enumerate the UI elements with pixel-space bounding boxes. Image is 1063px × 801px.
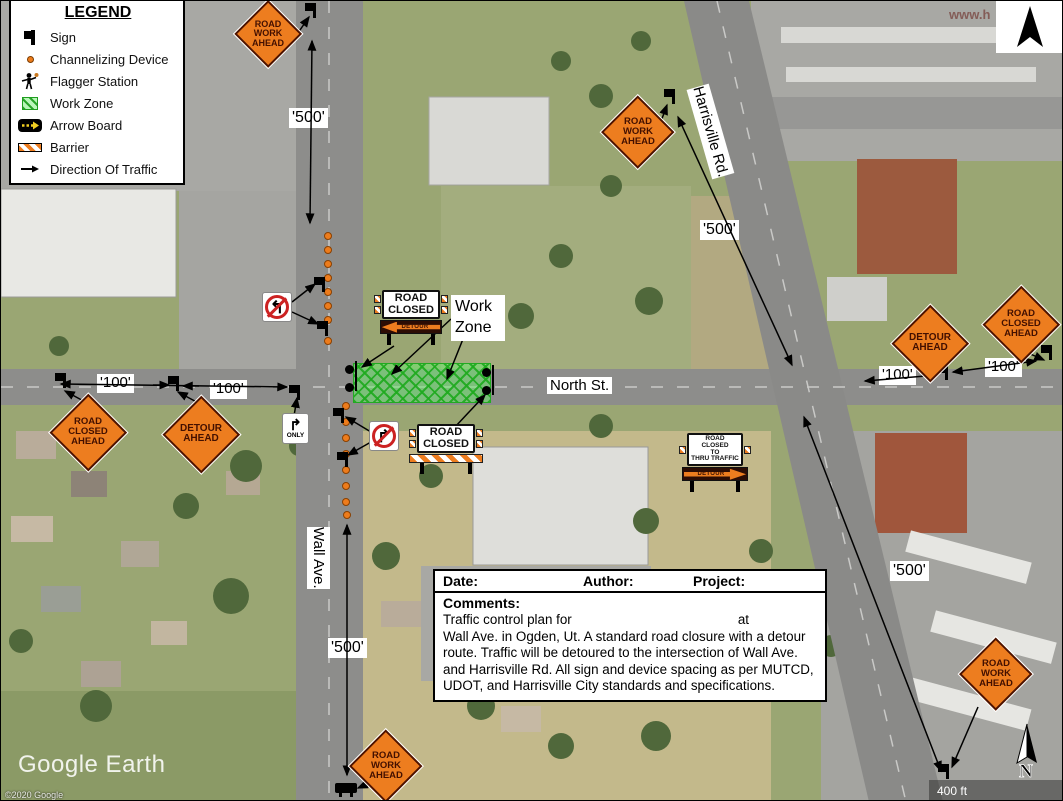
channelizing-device — [342, 434, 350, 442]
closure-bar — [492, 365, 494, 395]
detour-ahead-sign: DETOUR AHEAD — [895, 308, 965, 378]
no-left-turn-sign: ↰ — [262, 292, 292, 322]
sign-icon — [317, 321, 330, 337]
sign-icon — [337, 452, 350, 468]
project-label: Project: — [693, 573, 745, 589]
barricade-stripe — [374, 306, 381, 314]
street-label-north-st: North St. — [547, 377, 612, 394]
channelizing-device — [342, 498, 350, 506]
dimension-label-500: '500' — [890, 561, 929, 581]
work-zone-end-dot — [482, 368, 491, 377]
road-work-ahead-sign: ROAD WORK AHEAD — [353, 733, 419, 799]
legend-panel: LEGEND Sign Channelizing Device — [9, 1, 185, 185]
channelizing-device — [343, 511, 351, 519]
work-zone-end-dot — [482, 386, 491, 395]
work-zone-area — [353, 363, 491, 403]
closure-bar — [355, 361, 357, 391]
road-closed-ahead-sign: ROAD CLOSED AHEAD — [986, 289, 1056, 359]
sign-icon — [938, 764, 951, 780]
barricade-stripe — [679, 446, 686, 454]
dimension-label-500: '500' — [700, 220, 739, 240]
legend-title: LEGEND — [17, 4, 179, 22]
channelizing-device — [324, 260, 332, 268]
north-arrow-box — [996, 1, 1063, 53]
scale-bar: 400 ft — [929, 780, 1063, 801]
info-header-row: Date: Author: Project: — [435, 571, 825, 593]
road-closed-thru-traffic-barricade: ROAD CLOSED TO THRU TRAFFIC DETOUR — [679, 433, 751, 492]
dimension-label-100: '100' — [210, 380, 247, 399]
sign-icon — [55, 373, 68, 389]
sign-icon — [333, 408, 346, 424]
dimension-label-100: '100' — [97, 374, 134, 393]
barricade-stripe — [441, 306, 448, 314]
legend-item-flagger-station: Flagger Station — [17, 70, 179, 92]
barricade-stripe — [441, 295, 448, 303]
legend-item-direction-of-traffic: Direction Of Traffic — [17, 158, 179, 180]
dimension-label-100: '100' — [985, 358, 1022, 377]
detour-arrow-right: DETOUR — [684, 469, 746, 480]
road-work-ahead-sign: ROAD WORK AHEAD — [237, 3, 299, 65]
detour-arrow-panel: DETOUR — [682, 467, 748, 481]
no-right-turn-sign: ↱ — [369, 421, 399, 451]
legend-item-sign: Sign — [17, 26, 179, 48]
barrier-rail — [409, 454, 483, 463]
legend-item-barrier: Barrier — [17, 136, 179, 158]
detour-arrow-panel: DETOUR — [380, 320, 443, 334]
direction-of-traffic-icon — [17, 165, 43, 173]
google-earth-watermark: Google Earth — [18, 751, 165, 779]
traffic-control-plan: ROAD WORK AHEAD ROAD WORK AHEAD ROAD WOR… — [0, 0, 1063, 801]
compass-north: N — [1009, 721, 1045, 779]
work-zone-end-dot — [345, 365, 354, 374]
channelizing-device — [324, 232, 332, 240]
work-zone-icon — [17, 97, 43, 110]
copyright-text: ©2020 Google — [5, 790, 63, 800]
sign-icon — [17, 29, 43, 46]
channelizing-device-icon — [17, 56, 43, 63]
sign-icon — [289, 385, 302, 401]
sign-icon — [168, 376, 181, 392]
barrier-icon — [17, 143, 43, 152]
detour-ahead-sign: DETOUR AHEAD — [166, 399, 236, 469]
right-turn-arrow-icon: ↱ — [377, 428, 391, 445]
dimension-label-500: '500' — [289, 108, 328, 128]
barricade-stripe — [374, 295, 381, 303]
right-turn-only-sign: ↱ ONLY — [282, 413, 309, 444]
barricade-stripe — [476, 429, 483, 437]
plan-info-box: Date: Author: Project: Comments: Traffic… — [433, 569, 827, 702]
arrow-board-icon — [17, 119, 43, 132]
barricade-stripe — [409, 440, 416, 448]
street-label-wall-ave: Wall Ave. — [307, 527, 330, 589]
barricade-stripe — [476, 440, 483, 448]
channelizing-device — [342, 482, 350, 490]
legend-item-work-zone: Work Zone — [17, 92, 179, 114]
legend-item-arrow-board: Arrow Board — [17, 114, 179, 136]
channelizing-device — [324, 302, 332, 310]
channelizing-device — [324, 337, 332, 345]
work-zone-end-dot — [345, 383, 354, 392]
date-label: Date: — [443, 573, 583, 589]
sign-icon — [305, 3, 318, 19]
turn-arrow-icon: ↱ — [289, 418, 302, 433]
road-closed-ahead-sign: ROAD CLOSED AHEAD — [53, 397, 123, 467]
north-arrow-icon — [1010, 4, 1050, 50]
north-letter: N — [1019, 761, 1033, 779]
legend-item-channelizing-device: Channelizing Device — [17, 48, 179, 70]
road-closed-barricade: ROAD CLOSED — [409, 424, 483, 474]
channelizing-device — [324, 246, 332, 254]
barricade-stripe — [409, 429, 416, 437]
road-work-ahead-sign: ROAD WORK AHEAD — [963, 641, 1029, 707]
url-watermark: www.h — [949, 7, 990, 22]
detour-arrow-left: DETOUR — [382, 322, 441, 333]
comments-text: Traffic control plan for at Wall Ave. in… — [435, 611, 825, 700]
barricade-stripe — [744, 446, 751, 454]
sign-icon — [314, 277, 327, 293]
road-work-ahead-sign: ROAD WORK AHEAD — [605, 99, 671, 165]
author-label: Author: — [583, 573, 693, 589]
flagger-station-icon — [17, 72, 43, 90]
work-zone-callout: Work Zone — [451, 295, 505, 341]
scale-label: 400 ft — [937, 784, 967, 798]
dimension-label-500: '500' — [328, 638, 367, 658]
comments-label: Comments: — [435, 593, 825, 611]
left-turn-arrow-icon: ↰ — [270, 299, 284, 316]
road-closed-barricade-detour-left: ROAD CLOSED DETOUR — [377, 290, 445, 345]
